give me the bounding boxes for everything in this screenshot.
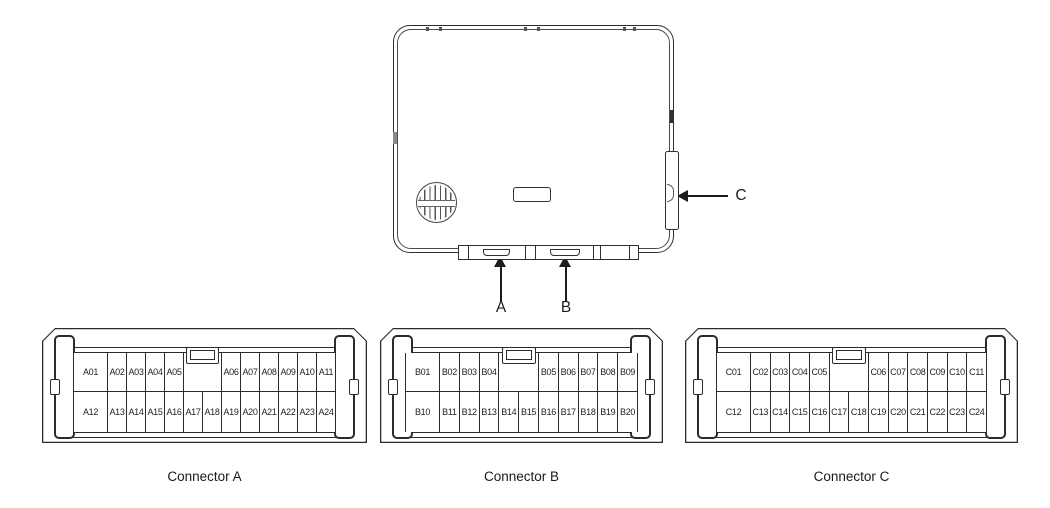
connector-b-port (550, 249, 580, 256)
pin-cell: C04 (790, 353, 810, 392)
pin-cell: C24 (967, 392, 987, 432)
pin-cell: B08 (598, 353, 618, 392)
latch-cell (499, 353, 539, 392)
pin-cell: A21 (260, 392, 279, 432)
pin-cell: A23 (298, 392, 317, 432)
pin-cell: C09 (928, 353, 948, 392)
edge-tick (524, 27, 527, 31)
latch-cell (830, 353, 869, 392)
pin-cell: B19 (598, 392, 618, 432)
pin-cell: A09 (279, 353, 298, 392)
pin-cell: B17 (559, 392, 579, 432)
pin-cell: C05 (810, 353, 830, 392)
pin-cell: C08 (908, 353, 928, 392)
pin-cell: B10 (406, 392, 440, 432)
edge-tick (426, 27, 429, 31)
module-label-slot (513, 187, 551, 202)
callout-arrow-a (500, 267, 502, 302)
pin-cell: A03 (127, 353, 146, 392)
connector-a-caption: Connector A (42, 469, 367, 484)
pin-cell: B11 (440, 392, 460, 432)
pin-cell: C22 (928, 392, 948, 432)
pin-cell: B20 (618, 392, 638, 432)
pin-cell: A16 (165, 392, 184, 432)
pin-cell: B05 (539, 353, 559, 392)
pin-cell: C01 (717, 353, 751, 392)
pin-cell: B01 (406, 353, 440, 392)
pin-grid-b: B01B02B03B04B05B06B07B08B09B10B11B12B13B… (405, 353, 638, 432)
pin-cell: A19 (222, 392, 241, 432)
pin-cell: B13 (480, 392, 500, 432)
end-bracket-left (697, 335, 718, 439)
connector-c-side-tab (665, 151, 679, 230)
pin-cell: C02 (751, 353, 771, 392)
strip-divider (600, 246, 601, 259)
pin-cell: C18 (849, 392, 869, 432)
pin-cell: C14 (771, 392, 791, 432)
edge-tick (623, 27, 626, 31)
pin-cell: A18 (203, 392, 222, 432)
speaker-grille-icon (416, 182, 457, 223)
latch-tab-inner (506, 350, 532, 360)
pin-cell: C03 (771, 353, 791, 392)
pin-cell: A13 (108, 392, 127, 432)
end-bracket-left (54, 335, 75, 439)
connector-b-caption: Connector B (380, 469, 663, 484)
pin-cell: B12 (460, 392, 480, 432)
pin-cell: A15 (146, 392, 165, 432)
pin-cell: A20 (241, 392, 260, 432)
connector-c-diagram: C01C02C03C04C05C06C07C08C09C10C11C12C13C… (685, 328, 1018, 443)
pin-cell: B09 (618, 353, 638, 392)
pin-cell: C06 (869, 353, 889, 392)
callout-arrow-b (565, 267, 567, 302)
pin-cell: B07 (579, 353, 599, 392)
strip-divider (525, 246, 526, 259)
edge-tick (633, 27, 636, 31)
pin-cell: C11 (967, 353, 987, 392)
pin-cell: B14 (499, 392, 519, 432)
pin-cell: C15 (790, 392, 810, 432)
pin-cell: C20 (889, 392, 909, 432)
bottom-rail (68, 432, 341, 438)
edge-tick (537, 27, 540, 31)
pin-cell: C17 (830, 392, 850, 432)
pin-cell: A04 (146, 353, 165, 392)
callout-label-a: A (490, 299, 512, 317)
pin-cell: C12 (717, 392, 751, 432)
end-bracket-right (985, 335, 1006, 439)
pin-cell: C07 (889, 353, 909, 392)
wiring-diagram-canvas: A B C A01A02A03A04A05A06A07A08A09A10A11A… (0, 0, 1050, 508)
pin-cell: A14 (127, 392, 146, 432)
pin-cell: C16 (810, 392, 830, 432)
pin-cell: A08 (260, 353, 279, 392)
pin-cell: A02 (108, 353, 127, 392)
edge-tick (439, 27, 442, 31)
right-edge-tick (670, 110, 674, 123)
end-bracket-right (334, 335, 355, 439)
left-edge-tick (393, 132, 397, 144)
side-tab-bump (667, 184, 674, 202)
control-module-body (393, 25, 674, 253)
pin-cell: C10 (948, 353, 968, 392)
pin-grid-a: A01A02A03A04A05A06A07A08A09A10A11A12A13A… (73, 353, 336, 432)
grille-mid-band (418, 200, 455, 207)
pin-cell: A05 (165, 353, 184, 392)
latch-tab-inner (836, 350, 862, 360)
connector-a-diagram: A01A02A03A04A05A06A07A08A09A10A11A12A13A… (42, 328, 367, 443)
pin-cell: A22 (279, 392, 298, 432)
connector-a-port (483, 249, 510, 256)
bottom-rail (711, 432, 992, 438)
callout-arrow-c (687, 195, 728, 197)
strip-divider (629, 246, 630, 259)
pin-cell: C21 (908, 392, 928, 432)
callout-label-c: C (730, 187, 752, 205)
pin-cell: A10 (298, 353, 317, 392)
bottom-connector-strip (458, 245, 639, 260)
pin-cell: C13 (751, 392, 771, 432)
pin-cell: A06 (222, 353, 241, 392)
bottom-rail (406, 432, 637, 438)
pin-grid-c: C01C02C03C04C05C06C07C08C09C10C11C12C13C… (716, 353, 987, 432)
pin-cell: C19 (869, 392, 889, 432)
connector-b-diagram: B01B02B03B04B05B06B07B08B09B10B11B12B13B… (380, 328, 663, 443)
pin-cell: A12 (74, 392, 108, 432)
pin-cell: B16 (539, 392, 559, 432)
strip-divider (593, 246, 594, 259)
connector-c-caption: Connector C (685, 469, 1018, 484)
pin-cell: C23 (948, 392, 968, 432)
pin-cell: A24 (317, 392, 336, 432)
latch-tab-inner (190, 350, 215, 360)
pin-cell: B04 (480, 353, 500, 392)
strip-divider (535, 246, 536, 259)
pin-cell: B02 (440, 353, 460, 392)
pin-cell: A17 (184, 392, 203, 432)
pin-cell: A11 (317, 353, 336, 392)
pin-cell: B06 (559, 353, 579, 392)
strip-divider (468, 246, 469, 259)
pin-cell: B18 (579, 392, 599, 432)
pin-cell: A07 (241, 353, 260, 392)
pin-cell: B03 (460, 353, 480, 392)
pin-cell: A01 (74, 353, 108, 392)
pin-cell: B15 (519, 392, 539, 432)
callout-label-b: B (555, 299, 577, 317)
latch-cell (184, 353, 222, 392)
